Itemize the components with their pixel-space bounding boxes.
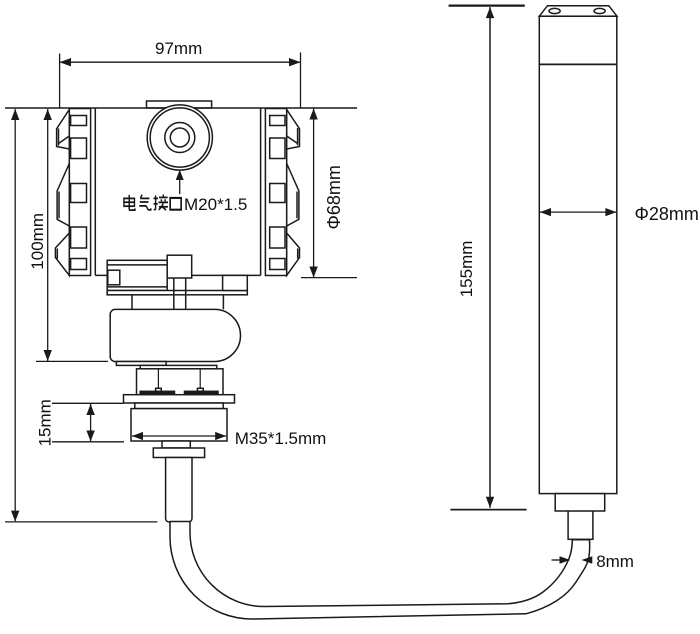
svg-text:100mm: 100mm: [28, 213, 47, 270]
svg-text:155mm: 155mm: [457, 241, 476, 298]
svg-text:Φ68mm: Φ68mm: [324, 165, 344, 229]
svg-text:8mm: 8mm: [596, 552, 634, 571]
svg-text:15mm: 15mm: [36, 399, 55, 446]
svg-text:97mm: 97mm: [155, 39, 202, 58]
svg-text:M20*1.5: M20*1.5: [184, 195, 247, 214]
svg-text:Φ28mm: Φ28mm: [635, 204, 699, 224]
svg-text:M35*1.5mm: M35*1.5mm: [235, 429, 327, 448]
